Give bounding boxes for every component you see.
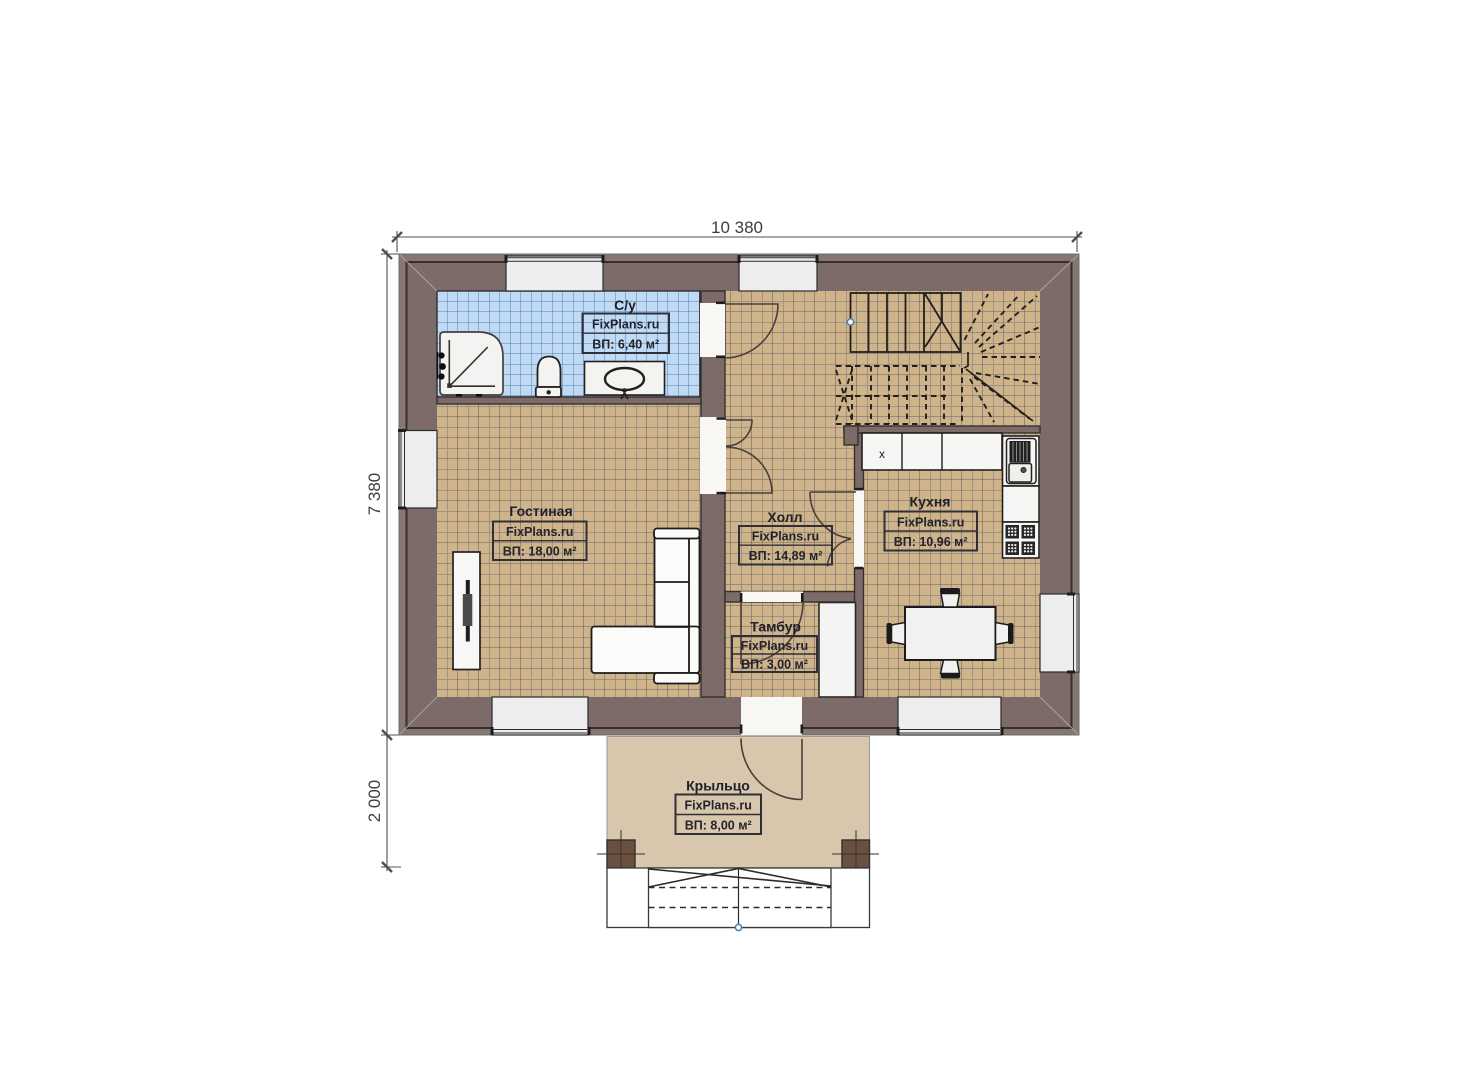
- svg-text:FixPlans.ru: FixPlans.ru: [752, 530, 819, 544]
- svg-text:ВП: 6,40 м²: ВП: 6,40 м²: [592, 338, 659, 352]
- svg-text:FixPlans.ru: FixPlans.ru: [506, 525, 573, 539]
- svg-text:Кухня: Кухня: [910, 494, 951, 510]
- svg-text:ВП: 10,96 м²: ВП: 10,96 м²: [894, 535, 968, 549]
- svg-text:FixPlans.ru: FixPlans.ru: [592, 318, 659, 332]
- svg-text:FixPlans.ru: FixPlans.ru: [741, 639, 808, 653]
- svg-text:ВП: 3,00 м²: ВП: 3,00 м²: [741, 658, 808, 672]
- svg-text:Крыльцо: Крыльцо: [686, 778, 750, 794]
- svg-text:Тамбур: Тамбур: [750, 619, 801, 635]
- svg-text:2 000: 2 000: [365, 780, 384, 823]
- svg-text:С/у: С/у: [614, 297, 636, 313]
- svg-text:Холл: Холл: [767, 509, 802, 525]
- svg-text:7 380: 7 380: [365, 473, 384, 516]
- svg-text:x: x: [879, 447, 885, 461]
- svg-text:FixPlans.ru: FixPlans.ru: [897, 516, 964, 530]
- svg-text:FixPlans.ru: FixPlans.ru: [685, 799, 752, 813]
- svg-text:ВП: 14,89 м²: ВП: 14,89 м²: [749, 549, 823, 563]
- svg-text:Гостиная: Гостиная: [509, 503, 572, 519]
- svg-text:ВП: 8,00 м²: ВП: 8,00 м²: [685, 819, 752, 833]
- svg-text:10 380: 10 380: [711, 218, 763, 237]
- svg-text:ВП: 18,00 м²: ВП: 18,00 м²: [503, 545, 577, 559]
